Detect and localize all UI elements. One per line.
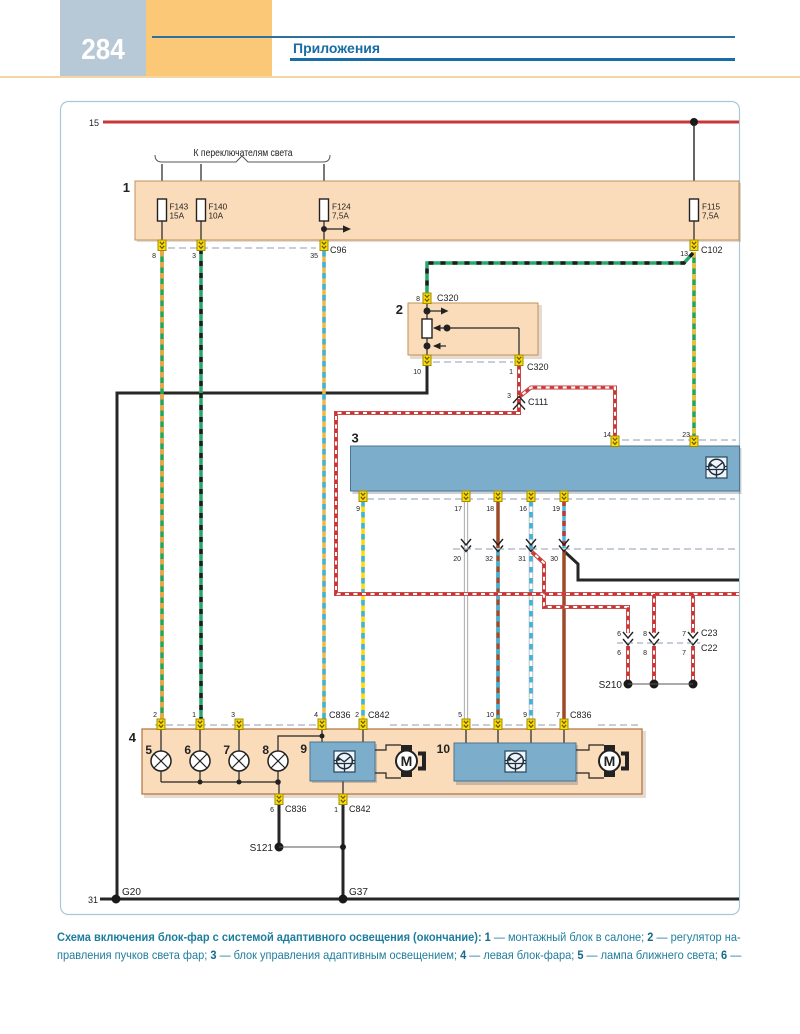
svg-text:6: 6: [617, 650, 621, 657]
svg-text:F124: F124: [332, 203, 351, 212]
svg-text:5: 5: [145, 743, 152, 757]
svg-text:F140: F140: [209, 203, 228, 212]
svg-text:M: M: [401, 753, 413, 769]
svg-text:S121: S121: [250, 843, 274, 854]
svg-text:8: 8: [262, 743, 269, 757]
svg-text:9: 9: [356, 506, 360, 513]
svg-text:G37: G37: [349, 887, 368, 898]
svg-text:15: 15: [89, 118, 99, 128]
svg-text:F115: F115: [702, 203, 720, 212]
svg-text:10: 10: [437, 742, 451, 756]
svg-text:4: 4: [314, 712, 318, 719]
svg-text:3: 3: [507, 393, 511, 400]
svg-text:19: 19: [552, 506, 560, 513]
svg-text:9: 9: [523, 712, 527, 719]
svg-text:4: 4: [129, 730, 137, 745]
svg-text:6: 6: [270, 807, 274, 814]
svg-text:1: 1: [334, 807, 338, 814]
svg-text:C836: C836: [285, 804, 307, 814]
svg-text:2: 2: [153, 712, 157, 719]
svg-text:16: 16: [519, 506, 527, 513]
svg-text:31: 31: [518, 556, 526, 563]
svg-text:18: 18: [486, 506, 494, 513]
svg-text:23: 23: [682, 432, 690, 439]
svg-text:C102: C102: [701, 245, 723, 255]
svg-text:C320: C320: [437, 293, 459, 303]
svg-text:20: 20: [453, 556, 461, 563]
svg-text:2: 2: [396, 302, 403, 317]
svg-text:10: 10: [486, 712, 494, 719]
svg-text:C320: C320: [527, 362, 549, 372]
svg-text:6: 6: [617, 631, 621, 638]
svg-text:8: 8: [643, 650, 647, 657]
svg-text:13: 13: [680, 251, 688, 258]
svg-text:F143: F143: [170, 203, 189, 212]
svg-text:6: 6: [184, 743, 191, 757]
svg-text:C96: C96: [330, 245, 347, 255]
svg-text:5: 5: [458, 712, 462, 719]
svg-text:2: 2: [355, 712, 359, 719]
svg-text:17: 17: [454, 506, 462, 513]
svg-text:3: 3: [231, 712, 235, 719]
svg-text:1: 1: [123, 180, 130, 195]
svg-text:1: 1: [192, 712, 196, 719]
svg-text:10A: 10A: [209, 212, 224, 221]
svg-text:G20: G20: [122, 887, 141, 898]
svg-text:C836: C836: [329, 710, 351, 720]
svg-text:7,5A: 7,5A: [702, 212, 719, 221]
svg-text:7: 7: [682, 631, 686, 638]
svg-text:C842: C842: [368, 710, 390, 720]
svg-text:3: 3: [192, 253, 196, 260]
svg-text:C22: C22: [701, 643, 718, 653]
svg-text:7: 7: [556, 712, 560, 719]
svg-text:30: 30: [550, 556, 558, 563]
svg-text:3: 3: [352, 431, 359, 446]
svg-text:7,5A: 7,5A: [332, 212, 349, 221]
svg-text:10: 10: [413, 369, 421, 376]
svg-text:8: 8: [152, 253, 156, 260]
svg-text:31: 31: [88, 895, 98, 905]
svg-text:32: 32: [485, 556, 493, 563]
svg-text:35: 35: [310, 253, 318, 260]
svg-text:14: 14: [603, 432, 611, 439]
svg-text:7: 7: [223, 743, 230, 757]
svg-text:7: 7: [682, 650, 686, 657]
svg-text:C842: C842: [349, 804, 371, 814]
svg-text:C836: C836: [570, 710, 592, 720]
svg-text:8: 8: [416, 296, 420, 303]
svg-text:M: M: [604, 753, 616, 769]
svg-text:C111: C111: [528, 397, 548, 407]
svg-text:9: 9: [300, 742, 307, 756]
svg-text:C23: C23: [701, 628, 718, 638]
svg-text:8: 8: [643, 631, 647, 638]
svg-text:15A: 15A: [170, 212, 185, 221]
svg-text:S210: S210: [599, 680, 623, 691]
svg-text:1: 1: [509, 369, 513, 376]
